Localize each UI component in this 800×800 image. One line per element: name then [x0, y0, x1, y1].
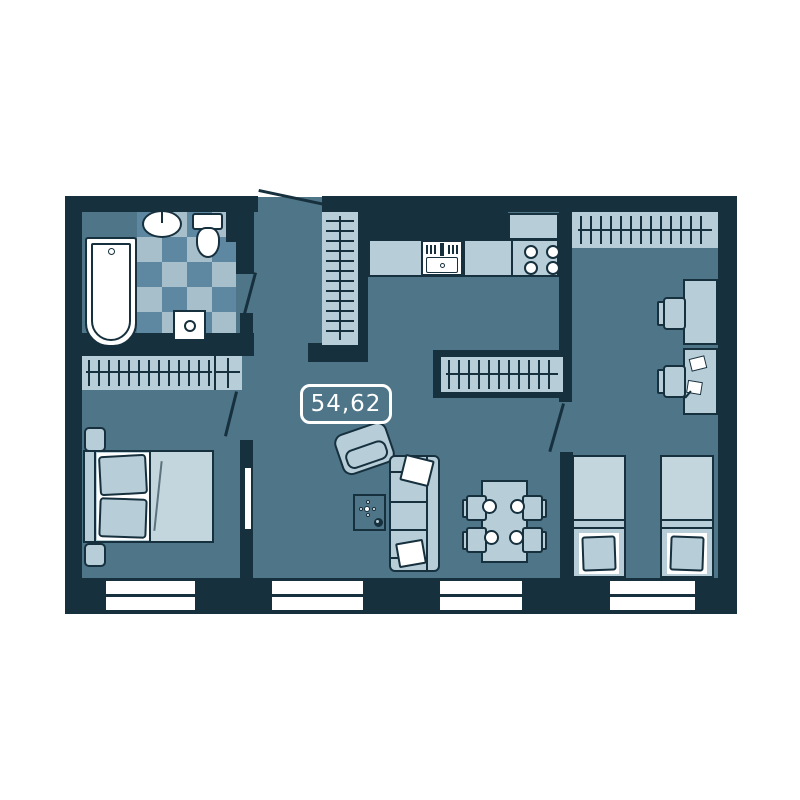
- faucet-right-grip: [448, 245, 458, 254]
- area-value: 54,62: [311, 391, 382, 417]
- flower-petal-e: [372, 507, 376, 511]
- washing-machine: [173, 310, 206, 341]
- nightstand-1: [84, 427, 106, 452]
- toilet-bowl: [196, 227, 220, 258]
- wall-top-right: [322, 196, 737, 212]
- window-1-outer: [106, 581, 195, 594]
- window-1-inner: [106, 597, 195, 610]
- bed2-fold: [662, 527, 712, 529]
- plate-3: [484, 530, 499, 545]
- tv-bracket-bottom: [245, 531, 250, 534]
- dining-chair-4-seat: [522, 527, 543, 553]
- wall-right: [718, 196, 737, 614]
- entrance-opening: [258, 197, 322, 212]
- stove-burner-1: [524, 245, 538, 259]
- kitchen-counter-return: [508, 213, 559, 240]
- counter-divider-2: [463, 241, 465, 275]
- desk-1: [683, 279, 718, 345]
- sink-basin: [426, 257, 458, 273]
- bed2-blanket: [662, 457, 712, 521]
- faucet-left-grip: [426, 245, 436, 254]
- washer-drum: [184, 320, 196, 332]
- kidsroom-wardrobe-rail: [578, 229, 712, 231]
- flower-petal-w: [359, 507, 363, 511]
- toilet-wall-stub: [226, 212, 236, 242]
- bathtub-drain: [108, 248, 115, 255]
- kitchen-duct: [362, 212, 508, 240]
- coffee-table: [353, 494, 386, 531]
- hall-wardrobe-rail: [339, 216, 341, 340]
- dining-chair-3-seat: [522, 495, 543, 521]
- hall-wall-stub: [308, 343, 368, 362]
- plate-1: [482, 499, 497, 514]
- kitchen-sink-unit: [421, 240, 463, 276]
- sofa-seam-2: [391, 529, 427, 531]
- window-2-outer: [272, 581, 363, 594]
- window-2-inner: [272, 597, 363, 610]
- tv-bracket-top: [245, 463, 250, 466]
- nightstand-2: [84, 543, 106, 567]
- bed1-fold: [574, 527, 624, 529]
- window-3-outer: [440, 581, 522, 594]
- plate-2: [510, 499, 525, 514]
- stove-burner-4: [546, 261, 560, 275]
- wall-left: [65, 196, 82, 614]
- bathtub-inner: [91, 243, 131, 341]
- bathtub: [85, 237, 137, 347]
- bed-pillow-2: [98, 497, 147, 539]
- tv: [243, 466, 253, 531]
- wall-top-left: [65, 196, 258, 212]
- single-bed-2: [660, 455, 714, 578]
- bed-pillow-1: [98, 454, 148, 496]
- single-bed-1: [572, 455, 626, 578]
- sofa-pillow-2: [395, 539, 427, 568]
- chair-1-seat: [663, 297, 686, 330]
- bedroom-wardrobe-hangers: [88, 360, 212, 386]
- bedroom-wardrobe-divider: [214, 356, 216, 390]
- wardrobe-shelf-cross-h: [216, 371, 240, 373]
- sink-drain: [440, 263, 445, 268]
- floor-plan: 54,62: [0, 0, 800, 800]
- bed2-pillow: [669, 535, 704, 571]
- counter-divider-3: [511, 241, 513, 275]
- double-bed: [83, 450, 214, 543]
- plate-4: [509, 530, 524, 545]
- window-3-inner: [440, 597, 522, 610]
- table-decor: [374, 518, 383, 527]
- hall-wardrobe2-rail: [446, 373, 558, 375]
- stove-burner-3: [524, 261, 538, 275]
- window-4-inner: [610, 597, 695, 610]
- flower-petal-n: [366, 500, 370, 504]
- bed1-pillow: [581, 535, 616, 571]
- flower-center: [364, 506, 370, 512]
- dining-table: [481, 480, 528, 563]
- window-4-outer: [610, 581, 695, 594]
- bathroom-right-wall-lower: [240, 313, 253, 345]
- stove-burner-2: [546, 245, 560, 259]
- bed1-blanket: [574, 457, 624, 521]
- chair-2-seat: [663, 365, 686, 398]
- sofa-seam-1: [391, 501, 427, 503]
- faucet-spout: [440, 243, 444, 256]
- wardrobe-shelf-cross-v: [227, 358, 229, 388]
- flower-petal-s: [366, 513, 370, 517]
- bed-headboard: [85, 452, 96, 541]
- area-label: 54,62: [300, 384, 392, 424]
- bedroom-wardrobe-rail: [86, 371, 212, 373]
